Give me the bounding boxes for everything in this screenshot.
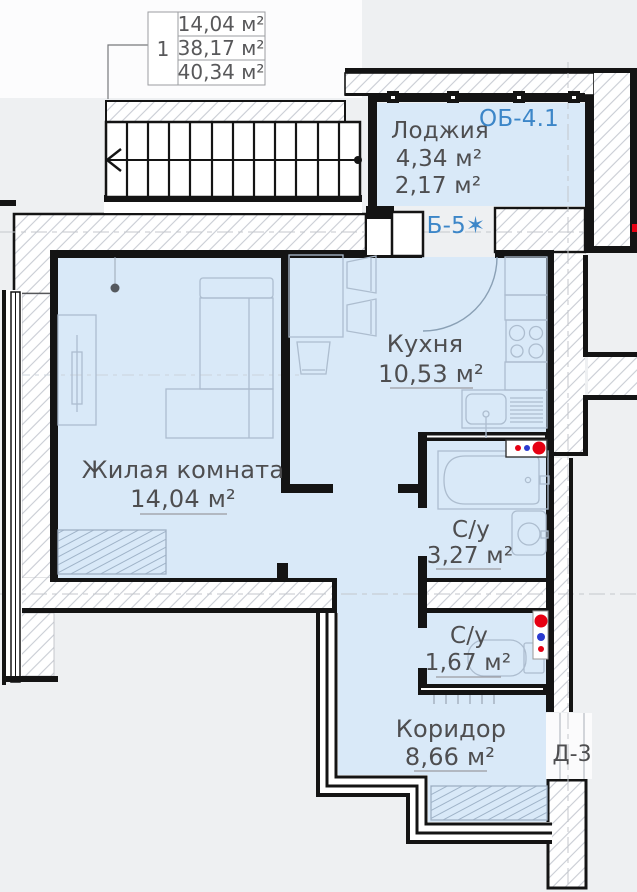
entry-door-label: Д-3	[552, 742, 591, 767]
balcony-door-label: Б-5✶	[427, 213, 486, 239]
doormat	[431, 786, 547, 820]
area-bath2: 1,67 м²	[425, 650, 512, 676]
area-loggia-reduced: 2,17 м²	[395, 173, 482, 199]
unit-number: 1	[157, 37, 170, 61]
area-bath1: 3,27 м²	[427, 543, 514, 569]
room-label-bath1: С/у	[452, 517, 490, 543]
area-row-reduced: 38,17 м²	[178, 36, 265, 60]
window-block-label: ОБ-4.1	[479, 106, 559, 132]
wall-pier	[392, 212, 423, 256]
area-kitchen: 10,53 м²	[378, 360, 484, 388]
room-label-kitchen: Кухня	[387, 330, 464, 358]
area-row-total: 40,34 м²	[178, 60, 265, 84]
room-label-living: Жилая комната	[82, 456, 285, 484]
floor-plan: 1 14,04 м² 38,17 м² 40,34 м² Лоджия ОБ-4…	[0, 0, 637, 892]
stair-start-dot	[354, 156, 362, 164]
area-living: 14,04 м²	[130, 485, 236, 513]
room-label-corridor: Коридор	[396, 715, 506, 743]
room-label-loggia: Лоджия	[391, 118, 489, 144]
riser-mark-right-wall	[632, 224, 637, 232]
area-row-living: 14,04 м²	[178, 12, 265, 36]
radiator	[58, 530, 166, 574]
area-loggia-full: 4,34 м²	[396, 146, 483, 172]
floor-plan-page: 1 14,04 м² 38,17 м² 40,34 м² Лоджия ОБ-4…	[0, 0, 637, 892]
room-label-bath2: С/у	[450, 623, 488, 649]
riser-box-bath1	[506, 440, 547, 457]
riser-box-bath2	[533, 611, 548, 659]
area-corridor: 8,66 м²	[405, 743, 495, 771]
